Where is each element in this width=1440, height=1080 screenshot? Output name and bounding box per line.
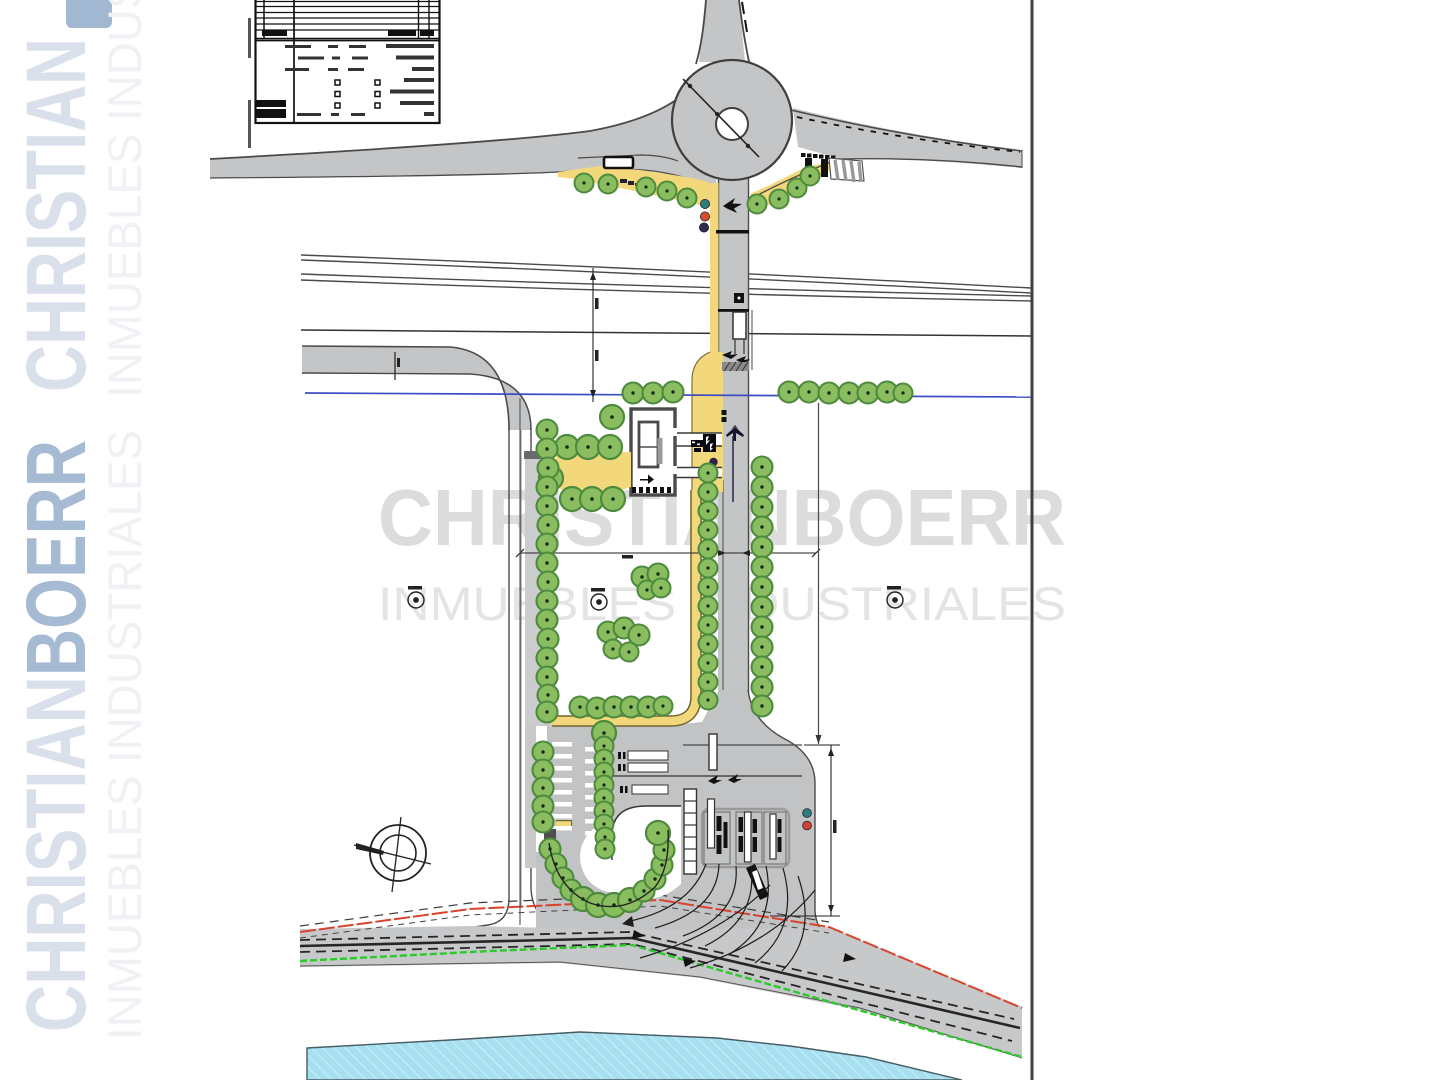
svg-text:INMUEBLES INDUSTRIALES: INMUEBLES INDUSTRIALES [98,0,151,398]
svg-text:CHRISTIAN: CHRISTIAN [9,38,103,392]
svg-text:CHRISTIANBOERR: CHRISTIANBOERR [9,440,103,1032]
svg-text:INMUEBLES INDUSTRIALES: INMUEBLES INDUSTRIALES [98,430,151,1040]
